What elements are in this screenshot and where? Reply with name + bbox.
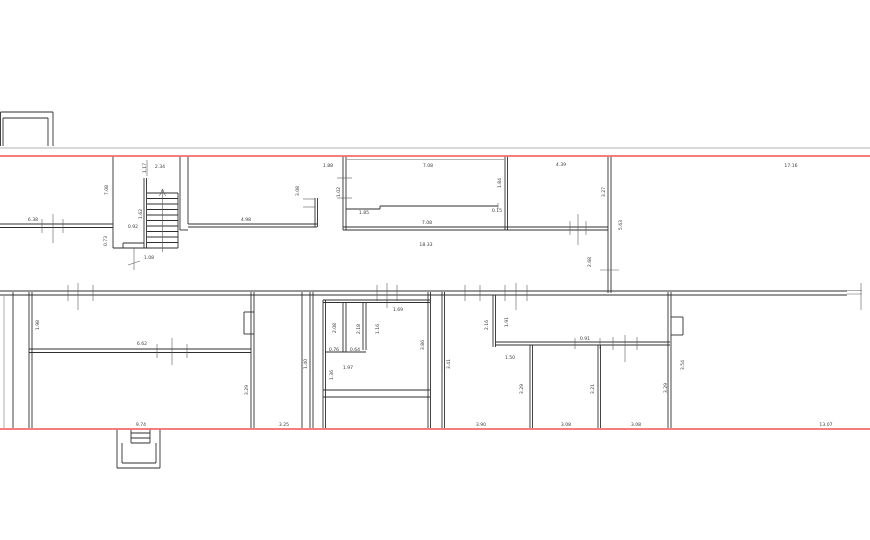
dimension-label: 1.17 bbox=[142, 163, 148, 173]
dimension-label: 6.38 bbox=[28, 217, 38, 223]
dimension-label: 3.29 bbox=[519, 384, 525, 394]
dimension-label: 1.97 bbox=[343, 365, 353, 371]
dimension-tick bbox=[163, 189, 166, 196]
dimension-label: 1.62 bbox=[138, 209, 144, 219]
dimension-label: 3.29 bbox=[244, 385, 250, 395]
dimension-label: 5.63 bbox=[618, 220, 624, 230]
dimension-label: 1.16 bbox=[375, 324, 381, 334]
dimension-label: 0.92 bbox=[128, 224, 138, 230]
dimension-label: 1.98 bbox=[35, 320, 41, 330]
dimension-label: 2.16 bbox=[484, 320, 490, 330]
dimension-label: 3.86 bbox=[420, 340, 426, 350]
dimension-label: 4.39 bbox=[556, 162, 566, 168]
dimension-label: 7.08 bbox=[104, 185, 110, 195]
dimension-label: 3.25 bbox=[279, 422, 289, 428]
dimension-label: 3.08 bbox=[295, 186, 301, 196]
dimension-label: 1.08 bbox=[144, 255, 154, 261]
dimension-label: 1.85 bbox=[359, 210, 369, 216]
dimension-label: 18.33 bbox=[419, 242, 432, 248]
dimension-label: 1.88 bbox=[323, 163, 333, 169]
dimension-label: 2.68 bbox=[587, 257, 593, 267]
dimension-label: 2.18 bbox=[356, 324, 362, 334]
dimension-label: 1.91 bbox=[504, 317, 510, 327]
dimension-label: 3.90 bbox=[476, 422, 486, 428]
dimension-label: 1.69 bbox=[393, 307, 403, 313]
dimension-label: 1.40 bbox=[303, 359, 309, 369]
dimension-label: 2.34 bbox=[155, 164, 165, 170]
dimension-label: 1.84 bbox=[497, 178, 503, 188]
dimension-label: 3.29 bbox=[663, 383, 669, 393]
dimension-label: 2.08 bbox=[332, 323, 338, 333]
dimension-label: 3.27 bbox=[601, 187, 607, 197]
dimension-label: 3.08 bbox=[631, 422, 641, 428]
dimension-label: 0.64 bbox=[350, 347, 360, 353]
dimension-label: 3.08 bbox=[561, 422, 571, 428]
dimension-label: 6.62 bbox=[137, 341, 147, 347]
floor-plan: 2.341.177.086.380.921.620.731.084.983.08… bbox=[0, 0, 870, 540]
dimension-label: 3.21 bbox=[590, 384, 596, 394]
dimension-label: 0.76 bbox=[329, 347, 339, 353]
dimension-label: 1.50 bbox=[505, 355, 515, 361]
dimension-label: 0.91 bbox=[580, 336, 590, 342]
dimension-label: 9.74 bbox=[136, 422, 146, 428]
dimension-label: 0.15 bbox=[492, 208, 502, 214]
dimension-label: 7.08 bbox=[423, 163, 433, 169]
dimension-label: 3.41 bbox=[446, 359, 452, 369]
dimension-label: 1.02 bbox=[336, 187, 342, 197]
dimension-label: 13.07 bbox=[819, 422, 832, 428]
dimension-tick bbox=[160, 189, 163, 196]
floor-plan-canvas: 2.341.177.086.380.921.620.731.084.983.08… bbox=[0, 0, 870, 540]
dimension-label: 1.36 bbox=[329, 370, 335, 380]
dimension-label: 7.08 bbox=[422, 220, 432, 226]
dimension-label: 0.73 bbox=[103, 236, 109, 246]
dimension-label: 17.16 bbox=[784, 163, 797, 169]
dimension-label: 4.98 bbox=[241, 217, 251, 223]
dimension-label: 3.54 bbox=[680, 360, 686, 370]
